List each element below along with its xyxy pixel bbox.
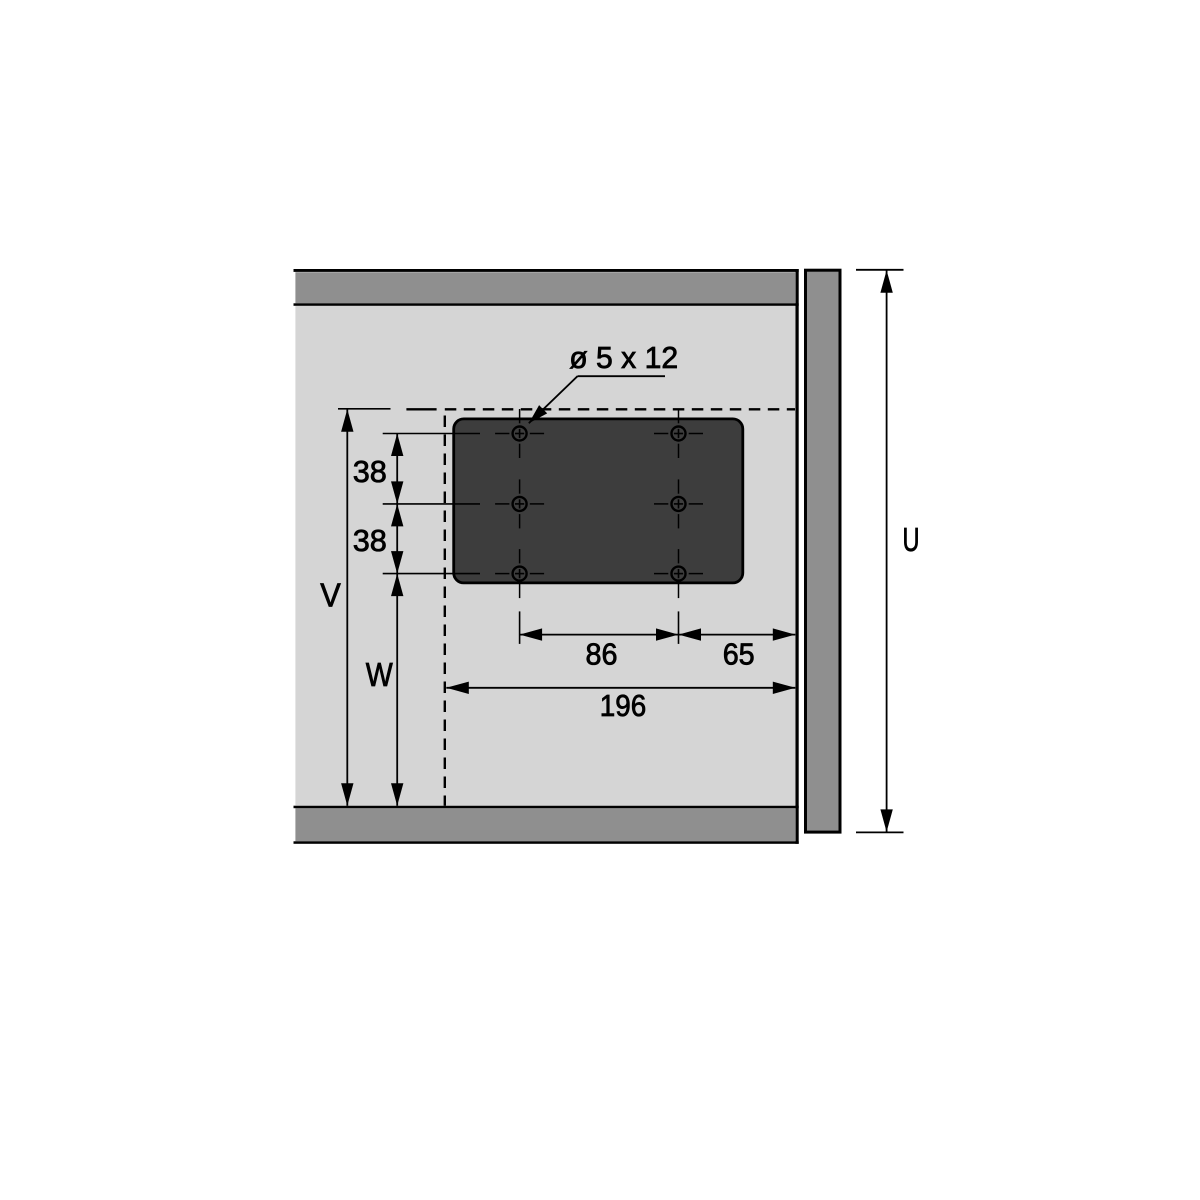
svg-text:V: V xyxy=(320,577,341,614)
svg-text:86: 86 xyxy=(586,637,618,672)
svg-text:196: 196 xyxy=(600,688,647,723)
svg-text:38: 38 xyxy=(353,523,387,558)
svg-text:W: W xyxy=(366,656,394,693)
svg-text:U: U xyxy=(903,521,920,558)
svg-text:65: 65 xyxy=(723,637,755,672)
svg-text:ø 5 x 12: ø 5 x 12 xyxy=(569,340,678,375)
svg-text:38: 38 xyxy=(353,454,387,489)
